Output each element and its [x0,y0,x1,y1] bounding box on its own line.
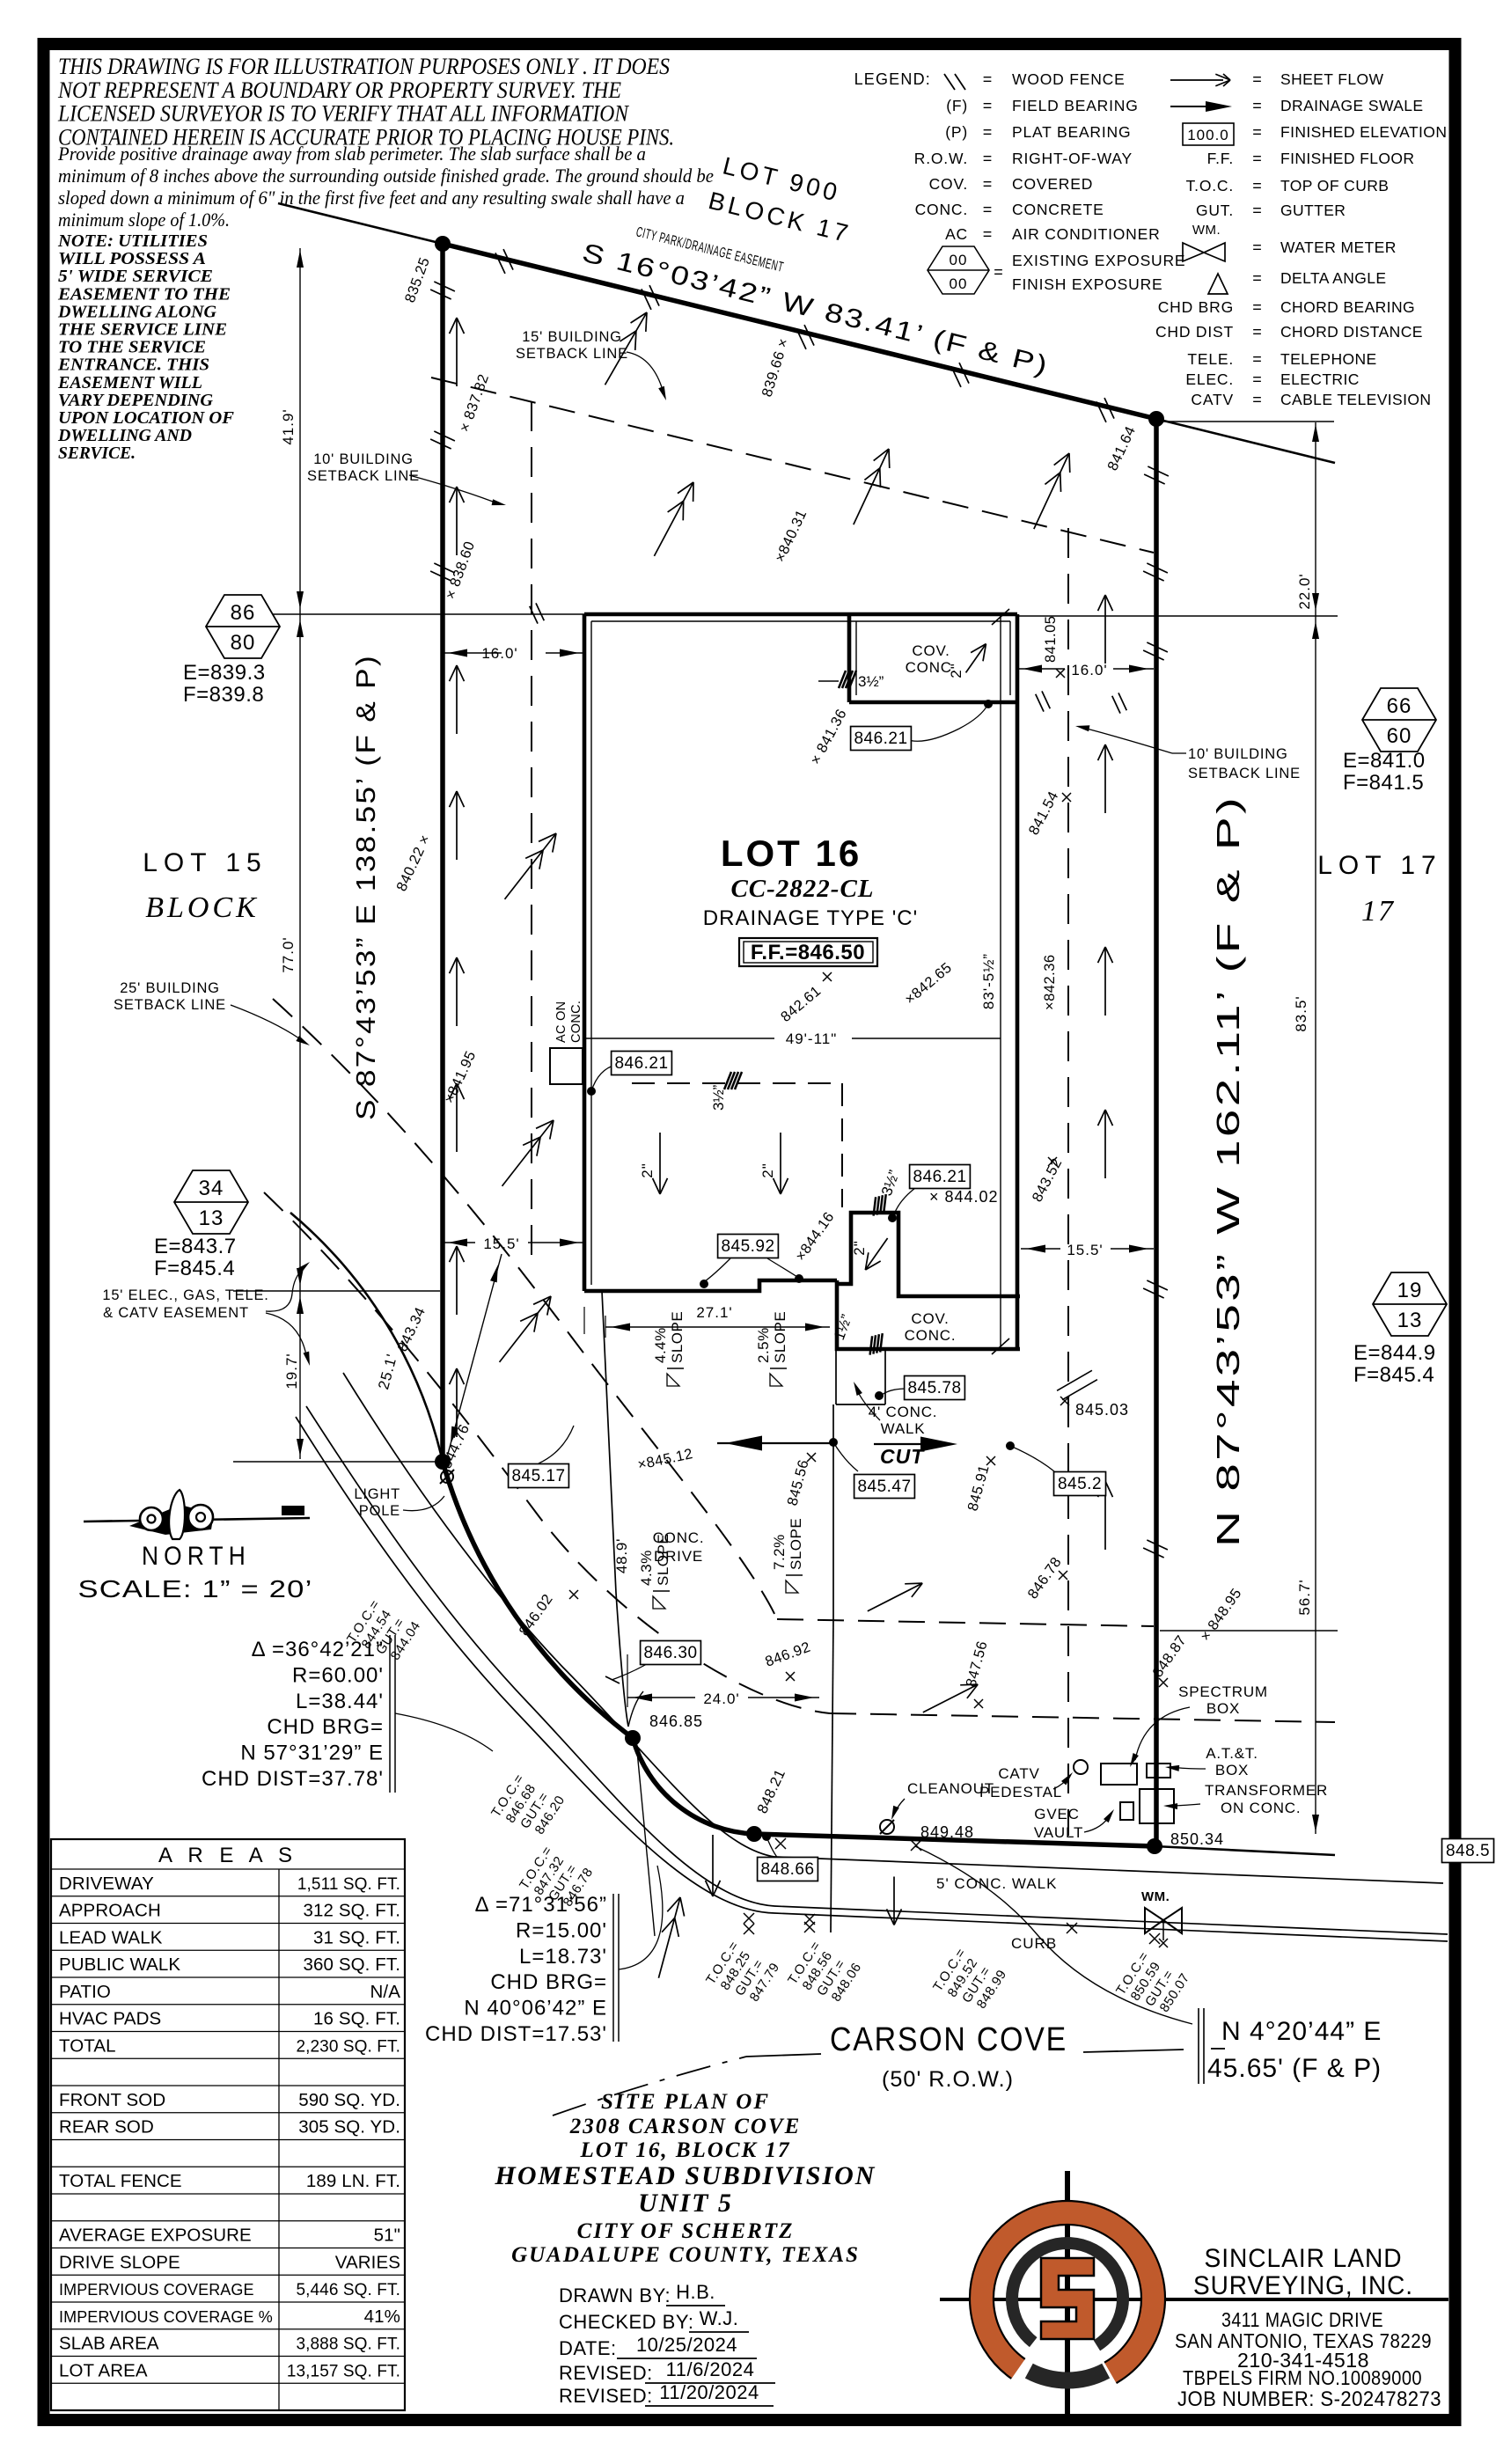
svg-text:31 SQ. FT.: 31 SQ. FT. [313,1927,400,1947]
svg-text:×841.95: ×841.95 [441,1048,479,1105]
svg-text:F.F.: F.F. [1207,150,1234,167]
svg-text:DRIVEWAY: DRIVEWAY [59,1874,154,1894]
svg-text:=: = [983,123,993,141]
svg-text:BOX: BOX [1215,1762,1249,1778]
svg-text:PUBLIC WALK: PUBLIC WALK [59,1954,180,1975]
svg-text:FRONT SOD: FRONT SOD [59,2090,165,2110]
svg-text:10' BUILDING: 10' BUILDING [313,451,414,467]
svg-text:41%: 41% [364,2306,400,2327]
svg-text:845.78: 845.78 [907,1379,961,1397]
svg-text:CONCRETE: CONCRETE [1012,201,1104,218]
svg-text:846.02: 846.02 [517,1591,556,1639]
svg-text:SLAB AREA: SLAB AREA [59,2334,159,2354]
svg-text:F=845.4: F=845.4 [1353,1363,1434,1387]
svg-text:848.21: 848.21 [754,1767,788,1816]
svg-text:SETBACK LINE: SETBACK LINE [1188,766,1301,781]
svg-text:REVISED:: REVISED: [559,2362,653,2384]
svg-text:48.9': 48.9' [613,1538,630,1573]
svg-text:VARIES: VARIES [335,2252,400,2272]
svg-text:TELEPHONE: TELEPHONE [1280,350,1377,368]
svg-text:845.03: 845.03 [1075,1401,1129,1419]
svg-text:841.64: 841.64 [1104,424,1139,473]
svg-text:00: 00 [950,252,968,268]
svg-text:41.9': 41.9' [280,408,297,444]
svg-text:NORTH: NORTH [142,1542,251,1571]
svg-text:FINISH EXPOSURE: FINISH EXPOSURE [1012,275,1162,293]
svg-text:× 841.36: × 841.36 [808,707,850,767]
svg-text:2": 2" [639,1162,656,1178]
svg-text:841.05: 841.05 [1043,616,1059,663]
svg-text:N 57°31’29” E: N 57°31’29” E [240,1742,384,1765]
svg-text:SCALE: 1” = 20’: SCALE: 1” = 20’ [78,1575,313,1602]
svg-text:25' BUILDING: 25' BUILDING [120,980,220,996]
svg-text:DELTA ANGLE: DELTA ANGLE [1280,269,1386,287]
svg-text:NOTE: UTILITIES: NOTE: UTILITIES [57,232,208,251]
svg-text:=: = [1252,269,1263,287]
svg-text:NOT REPRESENT A BOUNDARY OR PR: NOT REPRESENT A BOUNDARY OR PROPERTY SUR… [57,77,621,103]
svg-text:=: = [983,201,993,218]
svg-text:56.7': 56.7' [1296,1579,1313,1615]
svg-text:GUADALUPE COUNTY, TEXAS: GUADALUPE COUNTY, TEXAS [511,2243,860,2267]
svg-text:minimum of 8 inches above the: minimum of 8 inches above the surroundin… [58,165,714,187]
svg-text:F=841.5: F=841.5 [1343,771,1424,795]
svg-text:=: = [1252,391,1263,408]
svg-text:360 SQ. FT.: 360 SQ. FT. [304,1954,400,1975]
svg-text:11/6/2024: 11/6/2024 [666,2358,755,2380]
svg-text:5' WIDE SERVICE: 5' WIDE SERVICE [58,268,213,286]
svg-text:TBPELS FIRM NO.10089000: TBPELS FIRM NO.10089000 [1183,2366,1422,2389]
svg-text:16 SQ. FT.: 16 SQ. FT. [313,2009,400,2029]
svg-text:T.O.C.: T.O.C. [1186,177,1234,194]
svg-text:SHEET FLOW: SHEET FLOW [1280,70,1384,88]
svg-text:2,230 SQ. FT.: 2,230 SQ. FT. [296,2037,400,2056]
svg-text:FINISHED ELEVATION: FINISHED ELEVATION [1280,123,1447,141]
svg-text:LOT 16: LOT 16 [721,832,862,874]
svg-text:JOB NUMBER: S-202478273: JOB NUMBER: S-202478273 [1177,2387,1441,2411]
svg-text:DRAINAGE SWALE: DRAINAGE SWALE [1280,97,1424,114]
svg-text:DRIVE: DRIVE [654,1548,703,1565]
svg-text:SURVEYING, INC.: SURVEYING, INC. [1193,2271,1413,2300]
svg-text:REVISED:: REVISED: [559,2385,653,2407]
svg-text:& CATV EASEMENT: & CATV EASEMENT [103,1305,249,1321]
svg-text:312 SQ. FT.: 312 SQ. FT. [304,1901,400,1921]
svg-text:LOT 16, BLOCK 17: LOT 16, BLOCK 17 [580,2138,791,2162]
svg-text:7.2%: 7.2% [771,1534,788,1570]
svg-text:CHORD BEARING: CHORD BEARING [1280,298,1415,316]
svg-text:848.5: 848.5 [1446,1842,1490,1860]
svg-text:R.O.W.: R.O.W. [914,150,968,167]
svg-text:TRANSFORMER: TRANSFORMER [1205,1782,1328,1799]
svg-text:CHD BRG: CHD BRG [1158,298,1234,316]
svg-text:IMPERVIOUS COVERAGE %: IMPERVIOUS COVERAGE % [59,2308,273,2326]
svg-text:839.66 ×: 839.66 × [759,336,792,399]
svg-text:19.7': 19.7' [283,1353,300,1389]
svg-text:86: 86 [231,601,256,625]
svg-text:842.61: 842.61 [778,983,825,1025]
svg-text:ENTRANCE. THIS: ENTRANCE. THIS [57,356,209,375]
svg-text:IMPERVIOUS COVERAGE: IMPERVIOUS COVERAGE [59,2281,254,2299]
svg-text:846.85: 846.85 [649,1712,703,1730]
svg-text:835.25: 835.25 [402,255,433,304]
svg-text:CUT: CUT [880,1445,925,1468]
svg-text:×842.36: ×842.36 [1042,954,1058,1010]
svg-text:Δ =36°42’21”: Δ =36°42’21” [252,1638,384,1661]
svg-text:DWELLING AND: DWELLING AND [57,427,192,445]
svg-text:LIGHT: LIGHT [354,1486,400,1502]
svg-text:A.T.&T.: A.T.&T. [1206,1745,1258,1762]
svg-text:S 87°43’53” E 138.55’ (F & P): S 87°43’53” E 138.55’ (F & P) [350,654,381,1120]
svg-text:3,888 SQ. FT.: 3,888 SQ. FT. [296,2336,400,2354]
svg-text:SITE PLAN OF: SITE PLAN OF [601,2090,770,2114]
svg-text:16.0': 16.0' [1071,662,1107,678]
svg-text:E=843.7: E=843.7 [154,1235,237,1258]
svg-text:13: 13 [1397,1309,1423,1332]
svg-text:13,157 SQ. FT.: 13,157 SQ. FT. [287,2362,400,2380]
svg-text:N 87°43’53” W 162.11’ (F & P): N 87°43’53” W 162.11’ (F & P) [1210,795,1246,1547]
svg-text:EXISTING EXPOSURE: EXISTING EXPOSURE [1012,252,1185,269]
svg-text:E=839.3: E=839.3 [183,661,266,685]
svg-text:WOOD FENCE: WOOD FENCE [1012,70,1126,88]
svg-text:CC-2822-CL: CC-2822-CL [730,875,874,903]
svg-text:5,446 SQ. FT.: 5,446 SQ. FT. [296,2281,400,2299]
svg-text:3½”: 3½” [878,1168,903,1198]
svg-text:TOTAL: TOTAL [59,2035,116,2056]
svg-text:UNIT 5: UNIT 5 [638,2189,733,2218]
svg-text:2.5%: 2.5% [755,1327,772,1363]
svg-text:SETBACK LINE: SETBACK LINE [307,468,420,484]
svg-text:3411 MAGIC DRIVE: 3411 MAGIC DRIVE [1221,2308,1383,2331]
svg-text:CLEANOUT: CLEANOUT [907,1780,994,1797]
svg-text:1,511 SQ. FT.: 1,511 SQ. FT. [297,1875,400,1894]
svg-text:CHORD DISTANCE: CHORD DISTANCE [1280,323,1423,341]
svg-text:=: = [1252,350,1263,368]
svg-text:CONC.: CONC. [915,201,968,218]
svg-text:WM.: WM. [1192,223,1221,238]
svg-text:CATV: CATV [998,1765,1039,1782]
svg-text:10' BUILDING: 10' BUILDING [1188,746,1288,762]
svg-text:GUTTER: GUTTER [1280,202,1346,219]
svg-text:SLOPE: SLOPE [772,1311,788,1363]
svg-text:CHD BRG=: CHD BRG= [267,1715,384,1739]
svg-text:DWELLING ALONG: DWELLING ALONG [57,303,216,321]
svg-text:841.54: 841.54 [1026,788,1062,838]
svg-text:60: 60 [1387,724,1412,748]
svg-text:(P): (P) [945,123,968,141]
svg-text:4.3%: 4.3% [638,1550,655,1586]
svg-text:COV.: COV. [929,175,968,193]
svg-text:E=841.0: E=841.0 [1343,749,1426,773]
svg-text:APPROACH: APPROACH [59,1901,161,1921]
svg-text:THIS DRAWING IS FOR ILLUSTRATI: THIS DRAWING IS FOR ILLUSTRATION PURPOSE… [58,54,670,79]
svg-text:COVERED: COVERED [1012,175,1093,193]
svg-text:(F): (F) [946,97,968,114]
svg-text:=: = [1252,238,1263,256]
svg-text:27.1': 27.1' [696,1304,732,1321]
svg-text:SINCLAIR LAND: SINCLAIR LAND [1205,2244,1403,2273]
svg-text:WM.: WM. [1141,1889,1170,1904]
svg-text:=: = [1252,323,1263,341]
svg-text:DATE:: DATE: [559,2337,617,2359]
svg-text:H.B.: H.B. [676,2281,715,2303]
svg-text:845.2: 845.2 [1058,1475,1102,1493]
svg-text:BOX: BOX [1206,1700,1240,1717]
svg-text:15.5': 15.5' [483,1236,519,1252]
svg-text:COV.: COV. [912,642,950,659]
svg-text:=: = [983,97,993,114]
svg-text:(50' R.O.W.): (50' R.O.W.) [882,2067,1014,2092]
svg-text:SETBACK LINE: SETBACK LINE [516,346,628,362]
svg-text:845.56: 845.56 [784,1458,811,1507]
svg-text:PATIO: PATIO [59,1982,111,2002]
svg-text:SLOPE: SLOPE [788,1518,804,1570]
svg-text:VARY DEPENDING: VARY DEPENDING [58,392,213,410]
svg-text:AC: AC [945,225,968,243]
svg-text:10/25/2024: 10/25/2024 [636,2334,737,2356]
svg-text:REAR SOD: REAR SOD [59,2117,154,2138]
svg-text:CONC.: CONC. [569,1001,583,1043]
svg-text:F=839.8: F=839.8 [183,683,264,707]
svg-text:66: 66 [1387,694,1412,718]
svg-text:=: = [983,175,993,193]
svg-text:TELE.: TELE. [1187,350,1234,368]
svg-text:19: 19 [1397,1279,1423,1302]
svg-text:N 40°06’42” E: N 40°06’42” E [464,1997,607,2020]
svg-text:=: = [1252,177,1263,194]
svg-text:SPECTRUM: SPECTRUM [1178,1683,1268,1700]
svg-text:77.0': 77.0' [280,936,297,972]
svg-text:ON CONC.: ON CONC. [1221,1800,1301,1816]
svg-text:UPON LOCATION OF: UPON LOCATION OF [58,409,234,428]
svg-text:BLOCK: BLOCK [145,891,260,924]
svg-text:189 LN. FT.: 189 LN. FT. [306,2171,400,2191]
svg-text:PLAT BEARING: PLAT BEARING [1012,123,1131,141]
svg-text:LEGEND:: LEGEND: [854,70,931,88]
svg-text:843.52: 843.52 [1030,1155,1066,1205]
svg-text:FIELD BEARING: FIELD BEARING [1012,97,1139,114]
svg-text:AC ON: AC ON [554,1001,568,1043]
svg-text:AIR CONDITIONER: AIR CONDITIONER [1012,225,1161,243]
svg-text:DRAWN BY:: DRAWN BY: [559,2284,671,2306]
svg-text:SLOPE: SLOPE [669,1311,686,1363]
svg-text:CONC.: CONC. [653,1529,705,1546]
svg-text:=: = [1252,150,1263,167]
svg-text:HVAC PADS: HVAC PADS [59,2009,161,2029]
svg-text:13: 13 [199,1206,224,1230]
svg-text:2": 2" [759,1162,776,1178]
svg-text:80: 80 [231,631,256,655]
svg-text:4.4%: 4.4% [652,1327,669,1363]
svg-text:×842.65: ×842.65 [902,959,955,1008]
svg-text:sloped down a minimum of 6" in: sloped down a minimum of 6" in the first… [58,187,685,209]
svg-text:F=845.4: F=845.4 [154,1257,235,1280]
svg-text:×844.16: ×844.16 [793,1209,838,1264]
svg-text:=: = [1252,97,1263,114]
svg-text:× 848.95: × 848.95 [1198,1586,1245,1645]
svg-text:15' BUILDING: 15' BUILDING [522,329,622,345]
svg-text:CURB: CURB [1011,1935,1057,1952]
svg-text:CABLE TELEVISION: CABLE TELEVISION [1280,391,1431,408]
svg-text:846.21: 846.21 [614,1054,668,1073]
svg-text:minimum slope of 1.0%.: minimum slope of 1.0%. [58,209,230,231]
svg-text:SETBACK LINE: SETBACK LINE [114,997,226,1013]
svg-text:SERVICE.: SERVICE. [58,444,136,463]
svg-text:1½”: 1½” [831,1312,855,1342]
svg-text:CATV: CATV [1191,391,1234,408]
svg-text:Δ =71°31’56”: Δ =71°31’56” [475,1893,607,1917]
svg-text:=: = [994,263,1004,281]
svg-text:DRIVE SLOPE: DRIVE SLOPE [59,2252,180,2272]
svg-text:TOTAL FENCE: TOTAL FENCE [59,2171,182,2191]
svg-text:=: = [983,150,993,167]
svg-text:LEAD WALK: LEAD WALK [59,1927,163,1947]
svg-text:45.65' (F & P): 45.65' (F & P) [1207,2054,1382,2083]
svg-text:16.0': 16.0' [481,645,517,662]
svg-text:2": 2" [851,1240,868,1256]
svg-text:49'-11": 49'-11" [786,1030,838,1047]
svg-text:845.47: 845.47 [857,1478,911,1496]
svg-text:849.48: 849.48 [920,1823,974,1841]
svg-text:846.30: 846.30 [643,1644,697,1662]
svg-text:CHECKED BY:: CHECKED BY: [559,2311,693,2333]
svg-text:850.34: 850.34 [1170,1830,1224,1848]
svg-text:3½”: 3½” [710,1084,727,1111]
svg-text:VAULT: VAULT [1034,1824,1083,1841]
svg-text:847.56: 847.56 [963,1639,990,1689]
svg-text:GVEC: GVEC [1034,1806,1079,1822]
svg-text:WATER METER: WATER METER [1280,238,1397,256]
svg-text:E=844.9: E=844.9 [1353,1341,1436,1365]
svg-text:DRAINAGE TYPE 'C': DRAINAGE TYPE 'C' [703,906,918,930]
svg-text:CHD DIST=17.53': CHD DIST=17.53' [425,2022,607,2046]
svg-text:590 SQ. YD.: 590 SQ. YD. [298,2090,400,2110]
svg-text:=: = [1252,123,1263,141]
svg-text:EASEMENT TO THE: EASEMENT TO THE [57,285,231,304]
svg-text:TO THE SERVICE: TO THE SERVICE [58,339,206,357]
svg-text:GUT.: GUT. [1196,202,1234,219]
svg-text:R=60.00': R=60.00' [292,1663,384,1687]
svg-text:83.5': 83.5' [1293,995,1309,1031]
svg-text:CONC.: CONC. [905,1327,957,1344]
svg-text:WALK: WALK [881,1420,926,1437]
svg-text:FINISHED FLOOR: FINISHED FLOOR [1280,150,1414,167]
svg-text:24.0': 24.0' [703,1690,739,1707]
svg-text:CITY OF SCHERTZ: CITY OF SCHERTZ [577,2219,795,2243]
svg-text:=: = [983,70,993,88]
svg-text:83'-5½”: 83'-5½” [980,953,997,1009]
svg-text:CONC.: CONC. [906,659,957,676]
svg-text:22.0': 22.0' [1296,573,1313,609]
svg-text:CARSON COVE: CARSON COVE [830,2021,1067,2058]
svg-text:WILL POSSESS A: WILL POSSESS A [58,250,206,268]
svg-text:ELEC.: ELEC. [1185,370,1234,388]
svg-text:THE SERVICE LINE: THE SERVICE LINE [58,321,227,340]
svg-text:L=38.44': L=38.44' [296,1690,384,1713]
svg-text:POLE: POLE [359,1503,400,1519]
svg-text:TOP OF CURB: TOP OF CURB [1280,177,1389,194]
svg-text:846.78: 846.78 [1025,1554,1065,1602]
svg-text:11/20/2024: 11/20/2024 [659,2381,759,2403]
svg-text:L=18.73': L=18.73' [519,1945,607,1969]
svg-text:LICENSED SURVEYOR IS TO VERIFY: LICENSED SURVEYOR IS TO VERIFY THAT ALL … [57,101,629,127]
svg-text:00: 00 [950,275,968,292]
svg-text:RIGHT-OF-WAY: RIGHT-OF-WAY [1012,150,1133,167]
svg-text:4' CONC.: 4' CONC. [869,1404,938,1420]
svg-text:AVERAGE EXPOSURE: AVERAGE EXPOSURE [59,2226,252,2246]
svg-text:848.66: 848.66 [760,1860,814,1879]
svg-text:2308 CARSON COVE: 2308 CARSON COVE [569,2115,802,2138]
svg-text:LOT AREA: LOT AREA [59,2360,148,2380]
svg-text:EASEMENT WILL: EASEMENT WILL [57,374,202,392]
svg-text:305 SQ. YD.: 305 SQ. YD. [298,2117,400,2138]
svg-text:A R E A S: A R E A S [158,1844,297,1867]
svg-text:F.F.=846.50: F.F.=846.50 [751,941,865,964]
svg-text:846.92: 846.92 [763,1639,812,1670]
svg-text:=: = [983,225,993,243]
svg-text:CHD BRG=: CHD BRG= [490,1970,607,1994]
svg-text:25.1': 25.1' [375,1352,400,1391]
svg-text:=: = [1252,70,1263,88]
svg-text:×840.31: ×840.31 [772,507,810,564]
svg-text:× 844.02: × 844.02 [929,1188,999,1206]
svg-text:15.5': 15.5' [1067,1242,1103,1258]
svg-text:845.92: 845.92 [721,1237,774,1256]
svg-text:W.J.: W.J. [700,2307,739,2329]
svg-text:ELECTRIC: ELECTRIC [1280,370,1360,388]
svg-text:=: = [1252,298,1263,316]
svg-text:843.34: 843.34 [394,1305,429,1354]
svg-text:845.91: 845.91 [964,1463,992,1513]
svg-text:× 837.82: × 837.82 [457,372,492,435]
svg-text:×845.12: ×845.12 [636,1446,694,1473]
svg-text:5' CONC. WALK: 5' CONC. WALK [936,1875,1057,1892]
svg-text:Provide positive drainage away: Provide positive drainage away from slab… [57,143,646,165]
svg-text:846.21: 846.21 [854,730,907,748]
svg-text:CHD DIST: CHD DIST [1155,323,1234,341]
svg-text:HOMESTEAD SUBDIVISION: HOMESTEAD SUBDIVISION [495,2161,876,2190]
svg-text:51": 51" [374,2226,400,2246]
svg-text:N 4°20’44” E: N 4°20’44” E [1221,2017,1382,2046]
svg-text:840.22 ×: 840.22 × [393,832,433,894]
svg-text:LOT 17: LOT 17 [1317,851,1442,880]
svg-text:846.21: 846.21 [913,1168,966,1186]
svg-text:34: 34 [199,1177,224,1200]
svg-text:CHD DIST=37.78': CHD DIST=37.78' [202,1767,384,1791]
svg-text:LOT 15: LOT 15 [143,848,268,877]
svg-text:845.17: 845.17 [511,1467,565,1485]
svg-text:15' ELEC., GAS, TELE.: 15' ELEC., GAS, TELE. [102,1287,268,1303]
svg-text:17: 17 [1361,895,1395,928]
svg-text:COV.: COV. [911,1310,949,1327]
svg-text:=: = [1252,370,1263,388]
svg-text:R=15.00': R=15.00' [516,1918,607,1942]
svg-text:S 16°03’42” W 83.41’ (F & P): S 16°03’42” W 83.41’ (F & P) [579,238,1052,381]
svg-text:3½”: 3½” [858,673,884,690]
svg-text:N/A: N/A [370,1982,401,2002]
svg-text:=: = [1252,202,1263,219]
svg-text:100.0: 100.0 [1187,127,1229,143]
